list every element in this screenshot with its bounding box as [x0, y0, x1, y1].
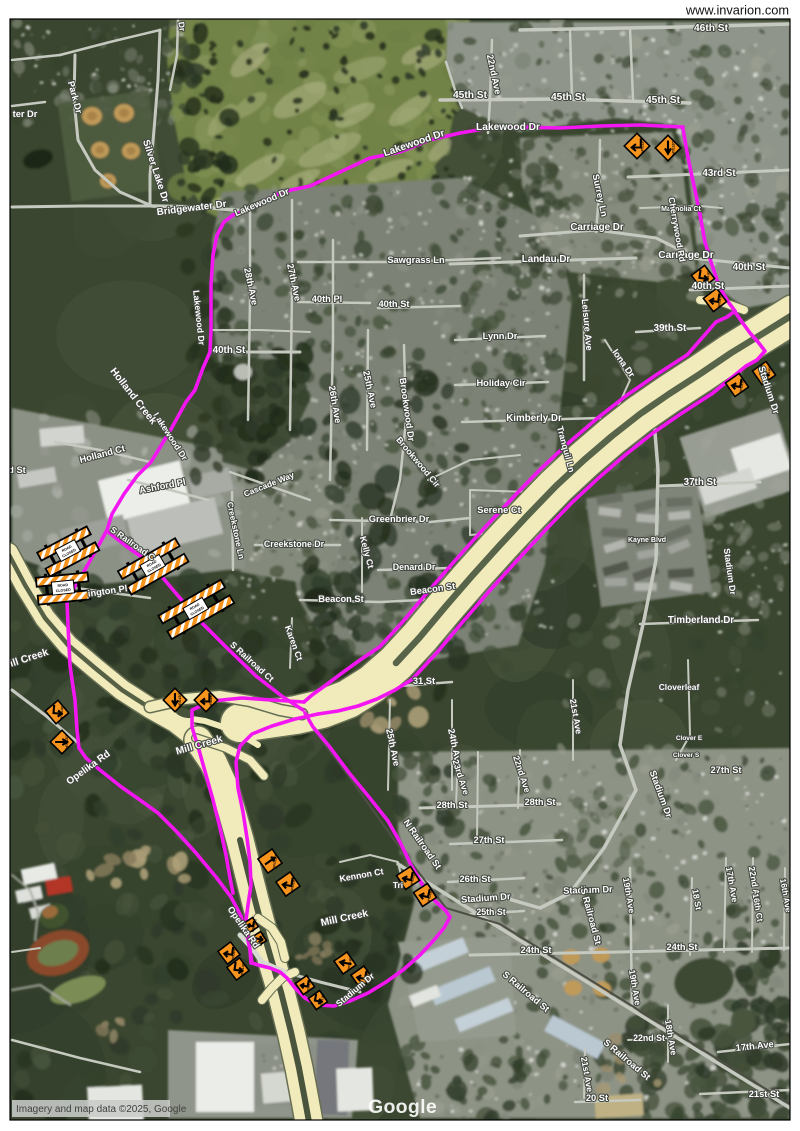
svg-text:24th St: 24th St	[667, 942, 698, 952]
svg-text:DETOUR: DETOUR	[178, 693, 182, 707]
svg-text:Sawgrass Ln: Sawgrass Ln	[387, 255, 445, 265]
svg-text:Imagery and map data ©2025, Go: Imagery and map data ©2025, Google	[16, 1104, 187, 1115]
svg-text:Clover S: Clover S	[673, 752, 700, 759]
svg-text:Landau Dr: Landau Dr	[522, 254, 571, 265]
svg-text:Cloverleaf: Cloverleaf	[659, 682, 700, 692]
svg-text:Kayne Blvd: Kayne Blvd	[628, 537, 666, 544]
svg-text:27th St: 27th St	[711, 765, 742, 775]
svg-text:Carriage Dr: Carriage Dr	[570, 222, 624, 233]
svg-text:Google: Google	[368, 1096, 437, 1118]
svg-text:24th St: 24th St	[521, 945, 552, 955]
svg-text:DETOUR: DETOUR	[65, 735, 69, 749]
svg-text:37th St: 37th St	[684, 477, 717, 488]
svg-text:Serene Ct: Serene Ct	[477, 505, 520, 515]
svg-text:40th St: 40th St	[379, 299, 410, 309]
svg-text:25th St: 25th St	[476, 907, 505, 917]
svg-text:Lakewood Dr: Lakewood Dr	[476, 122, 540, 133]
svg-text:21st St: 21st St	[749, 1089, 780, 1099]
svg-text:Holiday Cir: Holiday Cir	[476, 378, 525, 388]
svg-text:28th St: 28th St	[525, 797, 556, 807]
svg-text:www.invarion.com: www.invarion.com	[685, 3, 789, 18]
svg-text:DETOUR: DETOUR	[671, 141, 675, 155]
svg-text:Beacon St: Beacon St	[318, 594, 363, 604]
svg-text:20 St: 20 St	[586, 1093, 608, 1103]
svg-text:DETOUR: DETOUR	[640, 139, 644, 153]
svg-text:Greenbrier Dr: Greenbrier Dr	[369, 514, 430, 524]
svg-text:40th St: 40th St	[733, 262, 766, 273]
svg-text:45th St: 45th St	[646, 95, 681, 106]
svg-text:45th St: 45th St	[453, 90, 488, 101]
svg-text:40th St: 40th St	[692, 281, 725, 292]
svg-text:ter Dr: ter Dr	[13, 109, 38, 119]
svg-text:45th St: 45th St	[551, 92, 586, 103]
svg-text:40th Pl: 40th Pl	[312, 294, 342, 304]
svg-text:Kimberly Dr: Kimberly Dr	[506, 413, 562, 424]
svg-text:DETOUR: DETOUR	[209, 693, 213, 707]
svg-text:43rd St: 43rd St	[702, 168, 736, 179]
svg-text:d St: d St	[8, 465, 26, 475]
svg-text:Tri: Tri	[393, 880, 403, 890]
svg-text:26th St: 26th St	[460, 874, 491, 884]
svg-text:Creekstone Dr: Creekstone Dr	[264, 539, 325, 549]
svg-text:46th St: 46th St	[694, 23, 729, 34]
svg-text:39th St: 39th St	[654, 323, 687, 334]
svg-text:Lynn Dr: Lynn Dr	[483, 331, 518, 341]
svg-text:Timberland Dr: Timberland Dr	[668, 615, 734, 626]
svg-text:27th St: 27th St	[474, 835, 505, 845]
svg-text:Denard Dr: Denard Dr	[393, 562, 436, 572]
svg-text:28th St: 28th St	[437, 800, 468, 810]
svg-text:22nd St: 22nd St	[633, 1033, 665, 1043]
svg-text:Clover E: Clover E	[676, 735, 703, 742]
svg-text:40th St: 40th St	[213, 345, 246, 356]
svg-text:Magnolia Ct: Magnolia Ct	[661, 206, 701, 213]
svg-text:31 St: 31 St	[413, 676, 435, 686]
